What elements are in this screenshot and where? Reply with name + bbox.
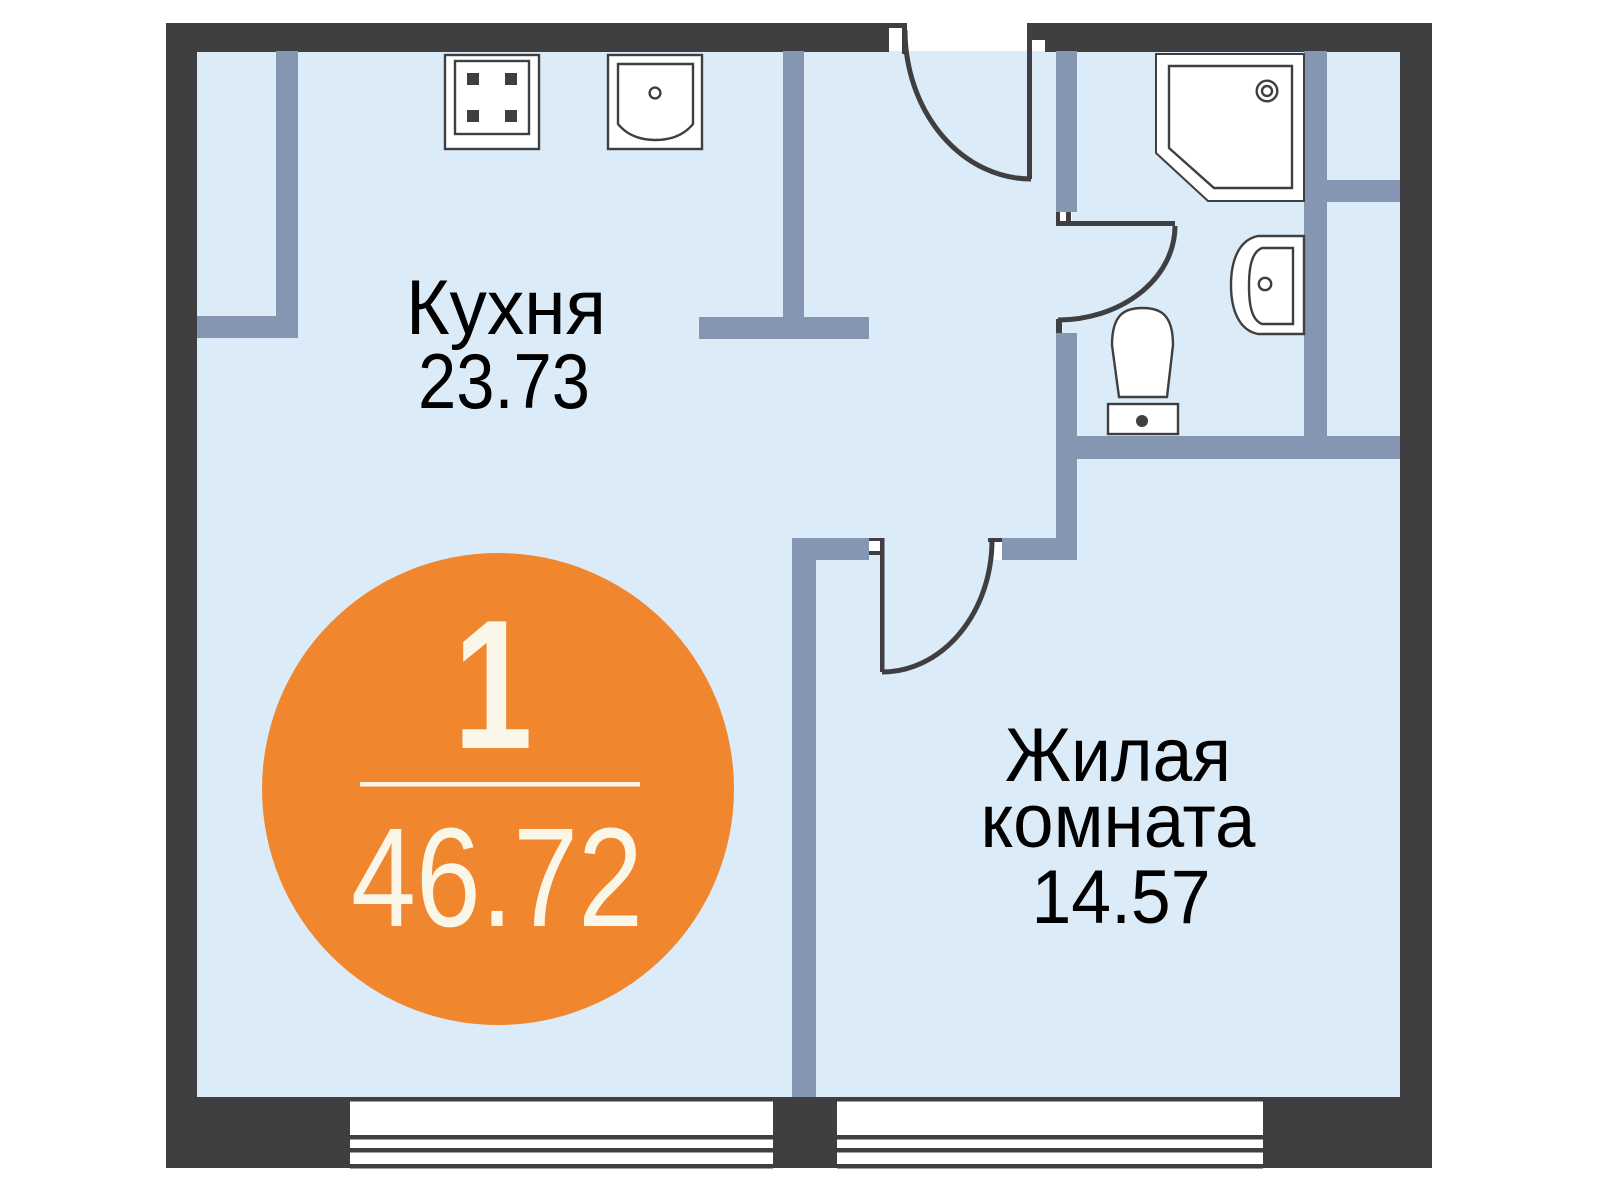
svg-text:46.72: 46.72 — [351, 798, 643, 956]
svg-text:1: 1 — [454, 581, 533, 787]
svg-text:комната: комната — [981, 779, 1257, 864]
svg-text:23.73: 23.73 — [418, 337, 590, 425]
svg-text:14.57: 14.57 — [1032, 855, 1211, 940]
